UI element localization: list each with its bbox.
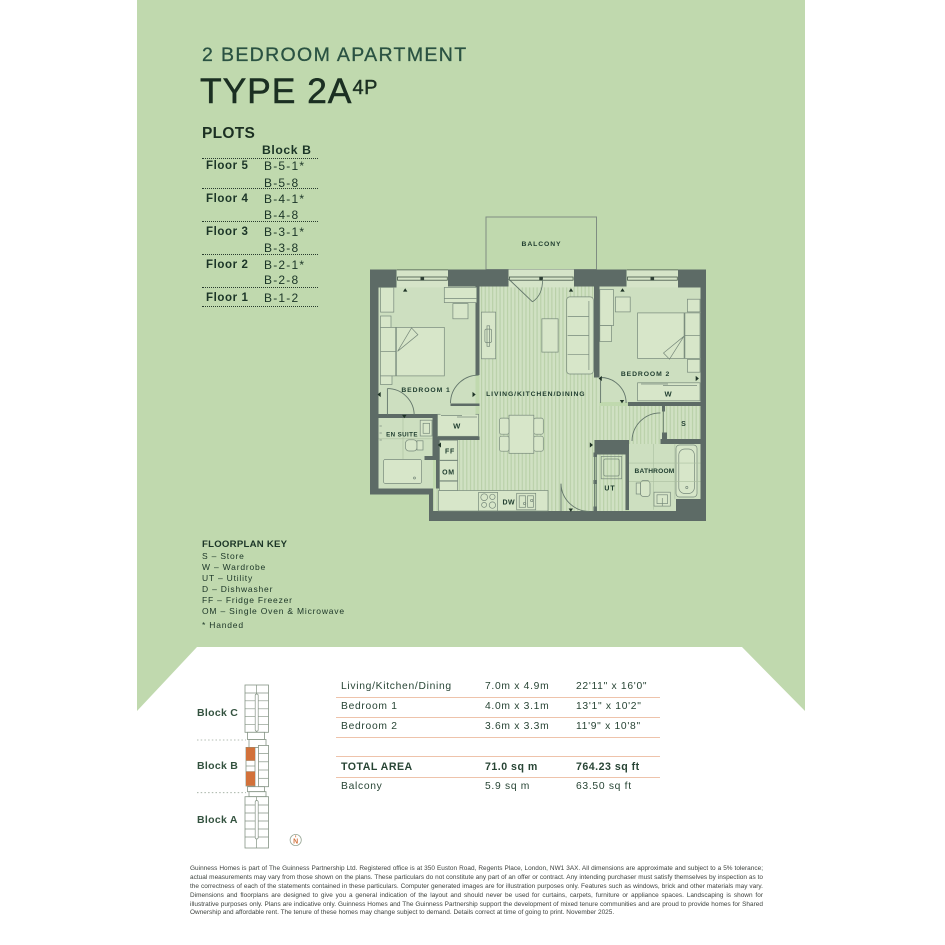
svg-text:N: N [293,839,298,846]
svg-text:BEDROOM 1: BEDROOM 1 [401,387,450,394]
svg-text:UT: UT [604,486,615,493]
svg-text:EN SUITE: EN SUITE [386,432,418,439]
svg-text:OM: OM [442,470,455,477]
svg-text:LIVING/KITCHEN/DINING: LIVING/KITCHEN/DINING [486,391,585,398]
svg-text:BEDROOM 2: BEDROOM 2 [621,371,670,378]
svg-text:DW: DW [502,500,515,507]
svg-text:BATHROOM: BATHROOM [635,468,675,475]
svg-text:BALCONY: BALCONY [522,241,562,248]
svg-text:S: S [681,421,686,428]
svg-text:W: W [664,389,672,398]
svg-text:FF: FF [445,449,455,456]
svg-text:W: W [453,422,461,431]
